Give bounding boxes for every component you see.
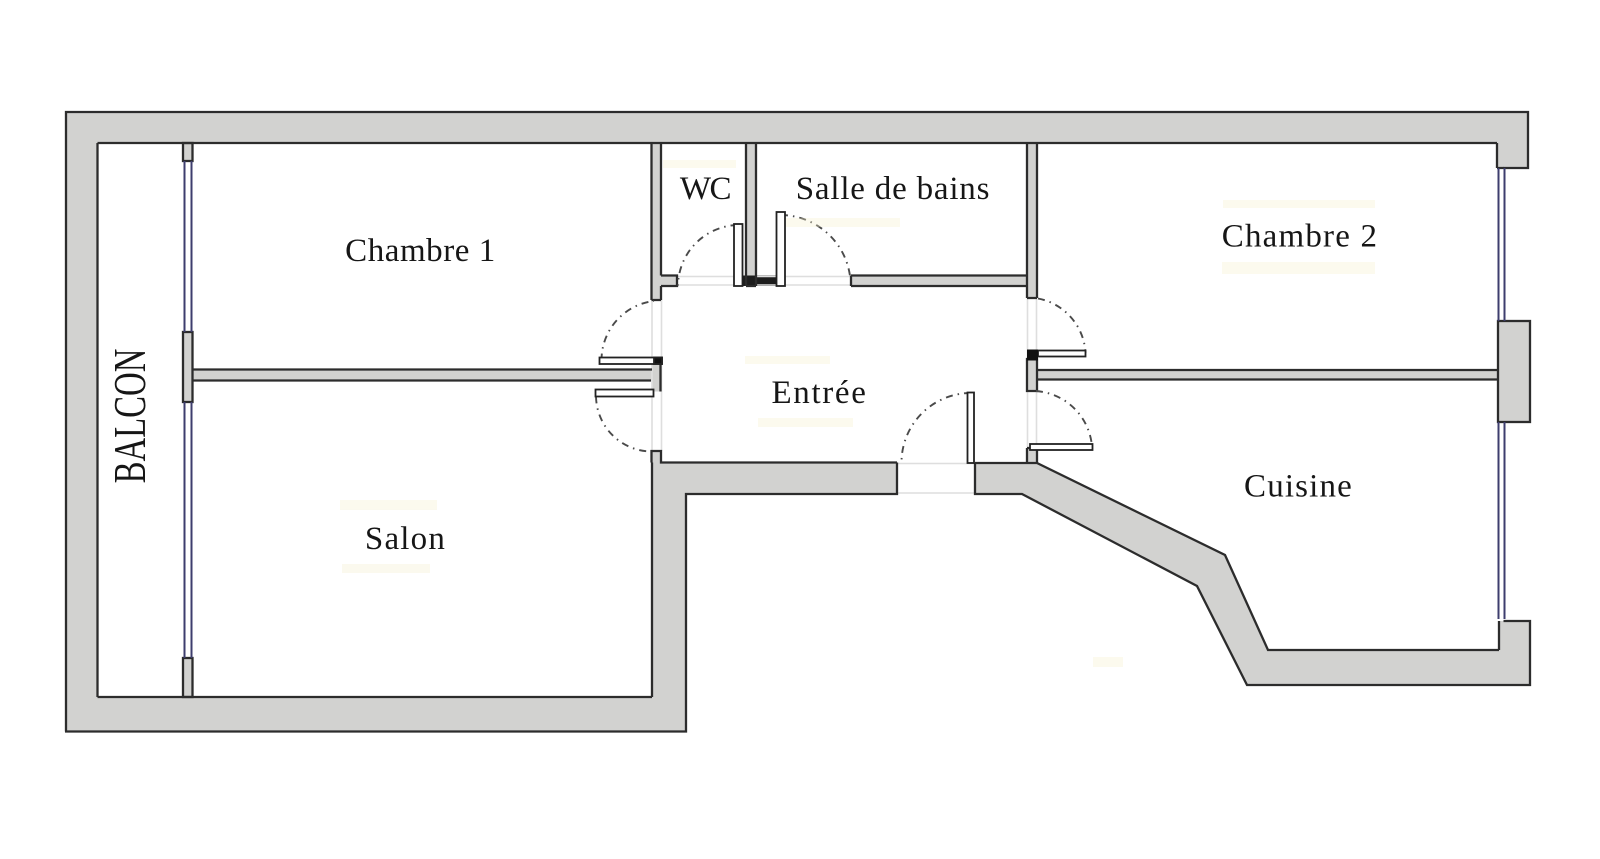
svg-text:Salle de bains: Salle de bains bbox=[796, 171, 991, 207]
svg-text:Chambre 1: Chambre 1 bbox=[345, 233, 496, 269]
svg-text:WC: WC bbox=[680, 171, 731, 207]
svg-text:Chambre 2: Chambre 2 bbox=[1222, 219, 1379, 255]
svg-text:BALCON: BALCON bbox=[104, 349, 156, 484]
svg-text:Entrée: Entrée bbox=[771, 375, 867, 411]
svg-text:Salon: Salon bbox=[365, 521, 446, 557]
svg-text:Cuisine: Cuisine bbox=[1244, 469, 1353, 505]
